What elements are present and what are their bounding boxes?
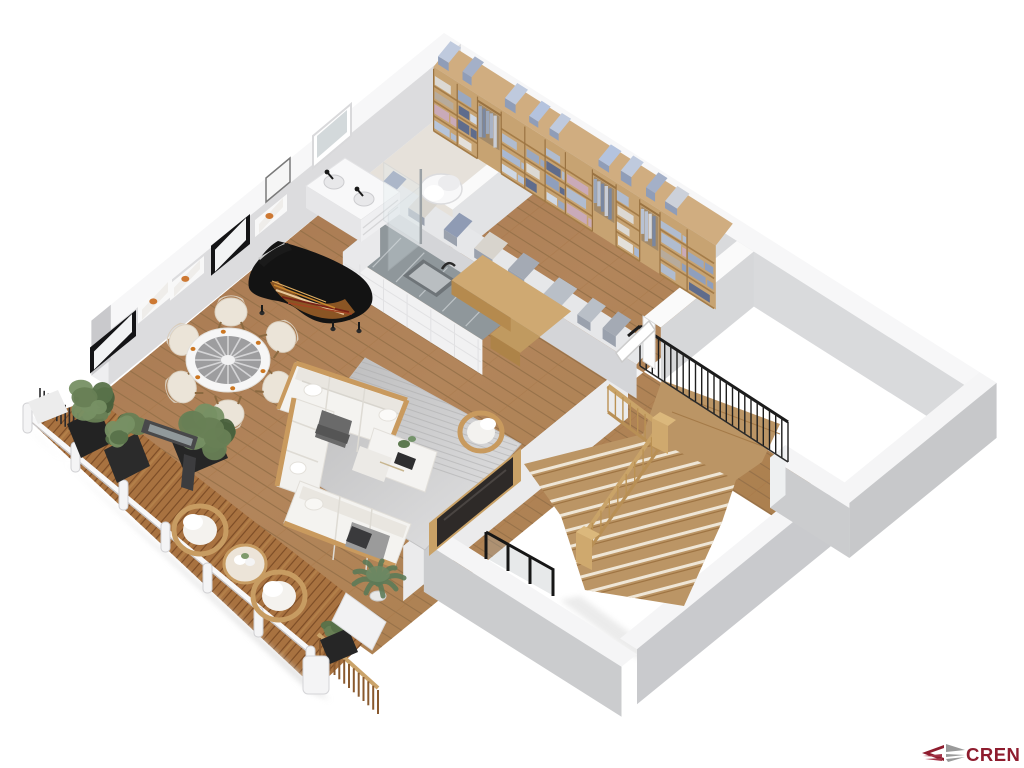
svg-text:CREN: CREN [966,744,1020,765]
